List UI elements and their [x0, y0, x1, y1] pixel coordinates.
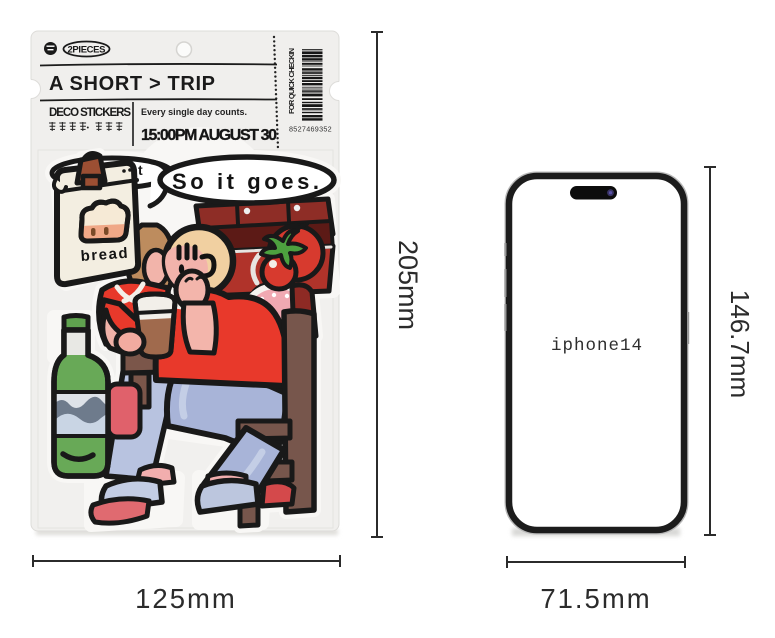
- svg-text:So it goes.: So it goes.: [172, 169, 322, 194]
- svg-text:Every single day counts.: Every single day counts.: [141, 107, 247, 117]
- svg-text:t: t: [138, 162, 143, 178]
- svg-text:125mm: 125mm: [135, 583, 237, 614]
- svg-text:bread: bread: [80, 245, 128, 265]
- svg-text:A SHORT > TRIP: A SHORT > TRIP: [49, 73, 215, 95]
- svg-text:71.5mm: 71.5mm: [540, 583, 651, 614]
- svg-text:15:00PM AUGUST 30: 15:00PM AUGUST 30: [141, 127, 277, 144]
- svg-text:DECO STICKERS: DECO STICKERS: [49, 107, 131, 119]
- svg-text:FOR QUICK CHECKIN: FOR QUICK CHECKIN: [287, 48, 296, 114]
- svg-text:146.7mm: 146.7mm: [725, 290, 755, 398]
- svg-text:205mm: 205mm: [393, 240, 423, 330]
- svg-text:2PIECES: 2PIECES: [68, 44, 106, 55]
- svg-text:8527469352: 8527469352: [289, 125, 332, 134]
- svg-text:iphone14: iphone14: [551, 336, 643, 356]
